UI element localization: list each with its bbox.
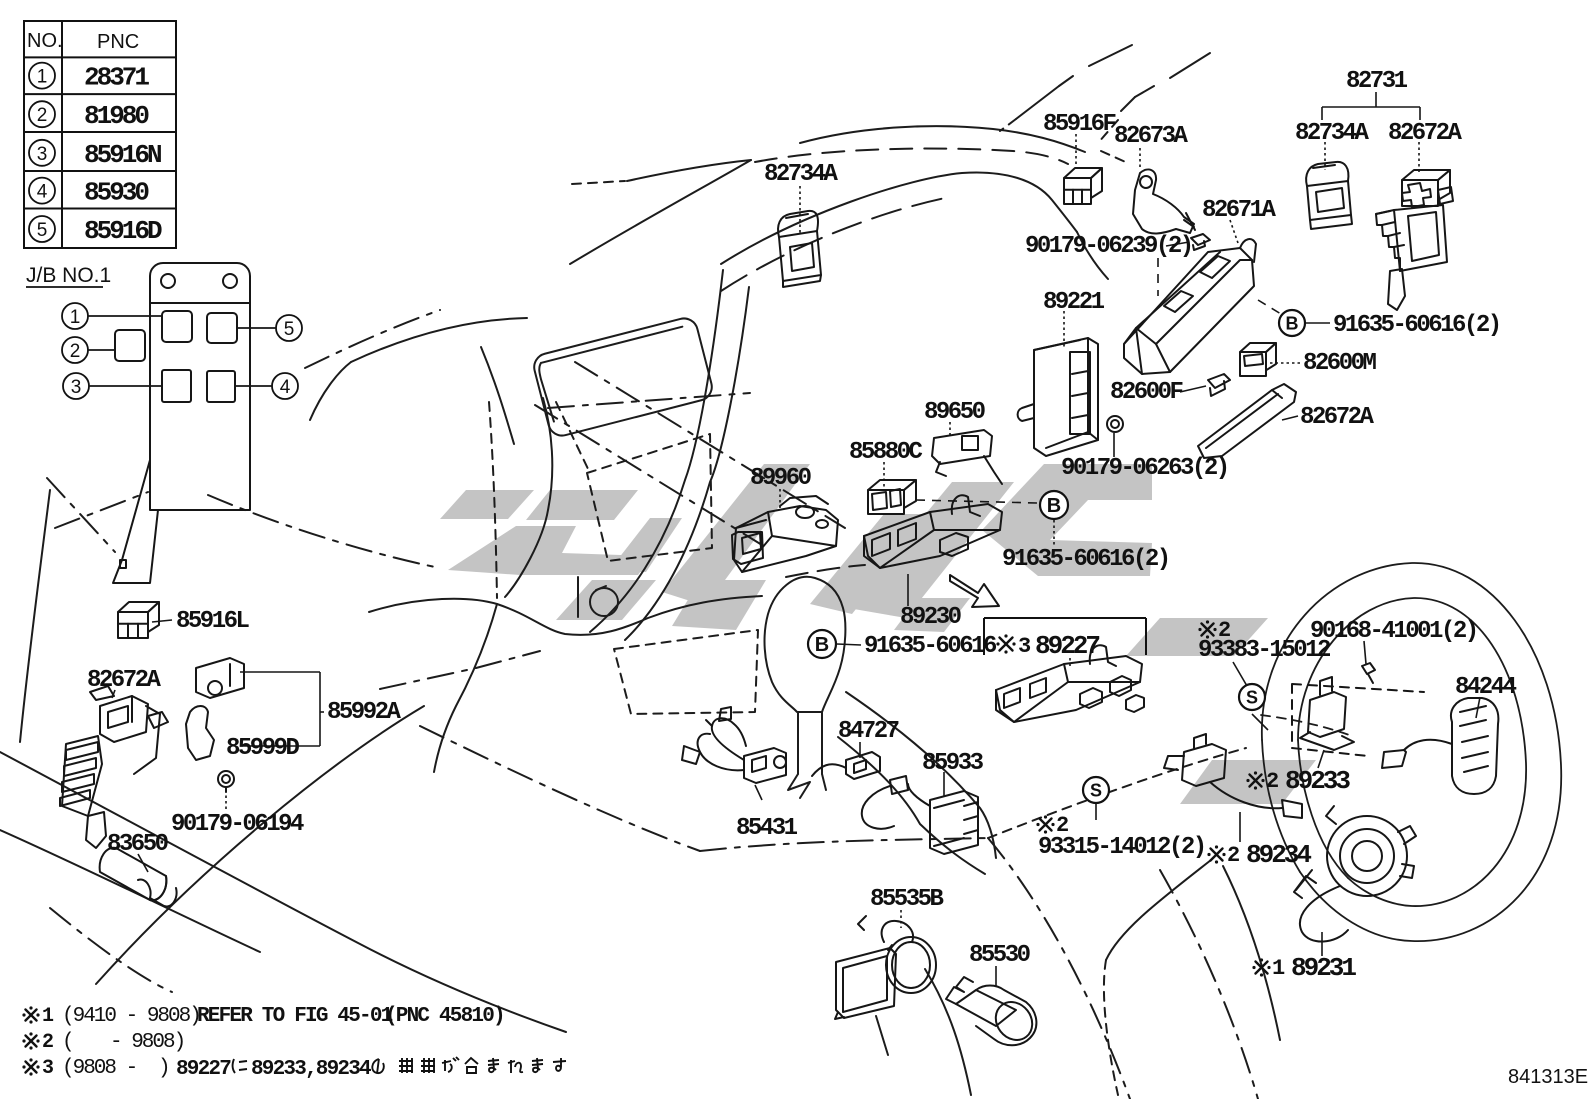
svg-text:85999D: 85999D [226, 735, 300, 762]
svg-text:NO.: NO. [27, 30, 63, 52]
svg-text:1: 1 [1272, 956, 1285, 981]
svg-text:90179-06194: 90179-06194 [171, 811, 304, 838]
svg-text:J/B NO.1: J/B NO.1 [26, 264, 111, 287]
svg-text:841313E: 841313E [1508, 1066, 1588, 1088]
svg-text:2: 2 [1227, 843, 1239, 868]
svg-text:82734A: 82734A [1295, 120, 1370, 147]
svg-text:S: S [1090, 781, 1102, 801]
svg-text:82672A: 82672A [87, 667, 162, 694]
svg-text:1: 1 [42, 1005, 54, 1028]
svg-text:85916F: 85916F [1043, 111, 1116, 138]
svg-text:(: ( [62, 1031, 73, 1054]
svg-text:85930: 85930 [84, 178, 149, 208]
svg-text:5: 5 [284, 319, 295, 340]
svg-text:85880C: 85880C [849, 439, 923, 466]
svg-text:93315-14012(2): 93315-14012(2) [1038, 834, 1205, 861]
svg-text:89227: 89227 [176, 1058, 231, 1081]
svg-text:84727: 84727 [838, 718, 899, 745]
svg-text:3: 3 [42, 1057, 53, 1080]
svg-text:2: 2 [70, 341, 81, 362]
svg-text:(PNC 45810): (PNC 45810) [385, 1005, 504, 1028]
svg-text:90179-06263(2): 90179-06263(2) [1061, 455, 1228, 482]
svg-text:91635-60616: 91635-60616 [864, 633, 997, 660]
svg-text:B: B [1286, 314, 1299, 334]
svg-text:(9808 -: (9808 - [62, 1057, 136, 1080]
svg-text:83650: 83650 [107, 831, 169, 858]
svg-text:1: 1 [70, 307, 81, 328]
svg-text:82672A: 82672A [1388, 120, 1463, 147]
svg-text:82731: 82731 [1346, 68, 1408, 95]
svg-text:91635-60616(2): 91635-60616(2) [1333, 312, 1500, 339]
svg-text:82673A: 82673A [1114, 123, 1189, 150]
svg-text:3: 3 [71, 377, 82, 398]
svg-text:PNC: PNC [97, 31, 139, 53]
svg-text:90179-06239(2): 90179-06239(2) [1025, 233, 1192, 260]
svg-text:89233: 89233 [1285, 766, 1350, 796]
svg-text:85916L: 85916L [176, 608, 250, 635]
svg-text:85916N: 85916N [84, 140, 161, 170]
svg-text:(9410 - 9808): (9410 - 9808) [62, 1005, 200, 1028]
svg-text:90168-41001(2): 90168-41001(2) [1310, 618, 1477, 645]
svg-text:): ) [158, 1057, 169, 1080]
svg-text:82600F: 82600F [1110, 379, 1183, 406]
svg-text:89221: 89221 [1043, 289, 1105, 316]
svg-text:82600M: 82600M [1303, 350, 1377, 377]
svg-text:5: 5 [37, 220, 48, 241]
svg-text:3: 3 [37, 144, 48, 165]
svg-text:81980: 81980 [84, 101, 149, 131]
svg-text:4: 4 [37, 182, 48, 203]
svg-text:89227: 89227 [1035, 631, 1099, 661]
svg-text:89230: 89230 [900, 604, 962, 631]
svg-text:85916D: 85916D [84, 216, 162, 246]
svg-text:85535B: 85535B [870, 886, 944, 913]
svg-text:82672A: 82672A [1300, 404, 1375, 431]
svg-text:S: S [1246, 688, 1258, 708]
svg-text:4: 4 [280, 377, 291, 398]
svg-text:B: B [815, 634, 829, 656]
svg-text:2: 2 [42, 1031, 53, 1054]
svg-text:89231: 89231 [1291, 953, 1356, 983]
svg-text:85530: 85530 [969, 942, 1031, 969]
svg-text:B: B [1047, 495, 1061, 517]
svg-text:89234: 89234 [1246, 840, 1311, 870]
svg-text:1: 1 [37, 67, 48, 88]
svg-text:- 9808): - 9808) [110, 1031, 184, 1054]
svg-text:91635-60616(2): 91635-60616(2) [1002, 546, 1169, 573]
svg-text:85992A: 85992A [327, 699, 402, 726]
svg-text:2: 2 [1266, 769, 1278, 794]
svg-text:2: 2 [37, 105, 48, 126]
svg-text:28371: 28371 [84, 63, 149, 93]
svg-text:89960: 89960 [750, 465, 812, 492]
svg-text:82734A: 82734A [764, 161, 839, 188]
svg-text:82671A: 82671A [1202, 197, 1277, 224]
svg-text:84244: 84244 [1455, 674, 1517, 701]
svg-text:REFER TO FIG 45-01: REFER TO FIG 45-01 [197, 1005, 393, 1028]
svg-text:85431: 85431 [736, 815, 798, 842]
svg-text:89233,89234: 89233,89234 [251, 1058, 371, 1081]
svg-text:89650: 89650 [924, 399, 986, 426]
svg-text:3: 3 [1018, 634, 1031, 659]
svg-text:85933: 85933 [922, 750, 984, 777]
